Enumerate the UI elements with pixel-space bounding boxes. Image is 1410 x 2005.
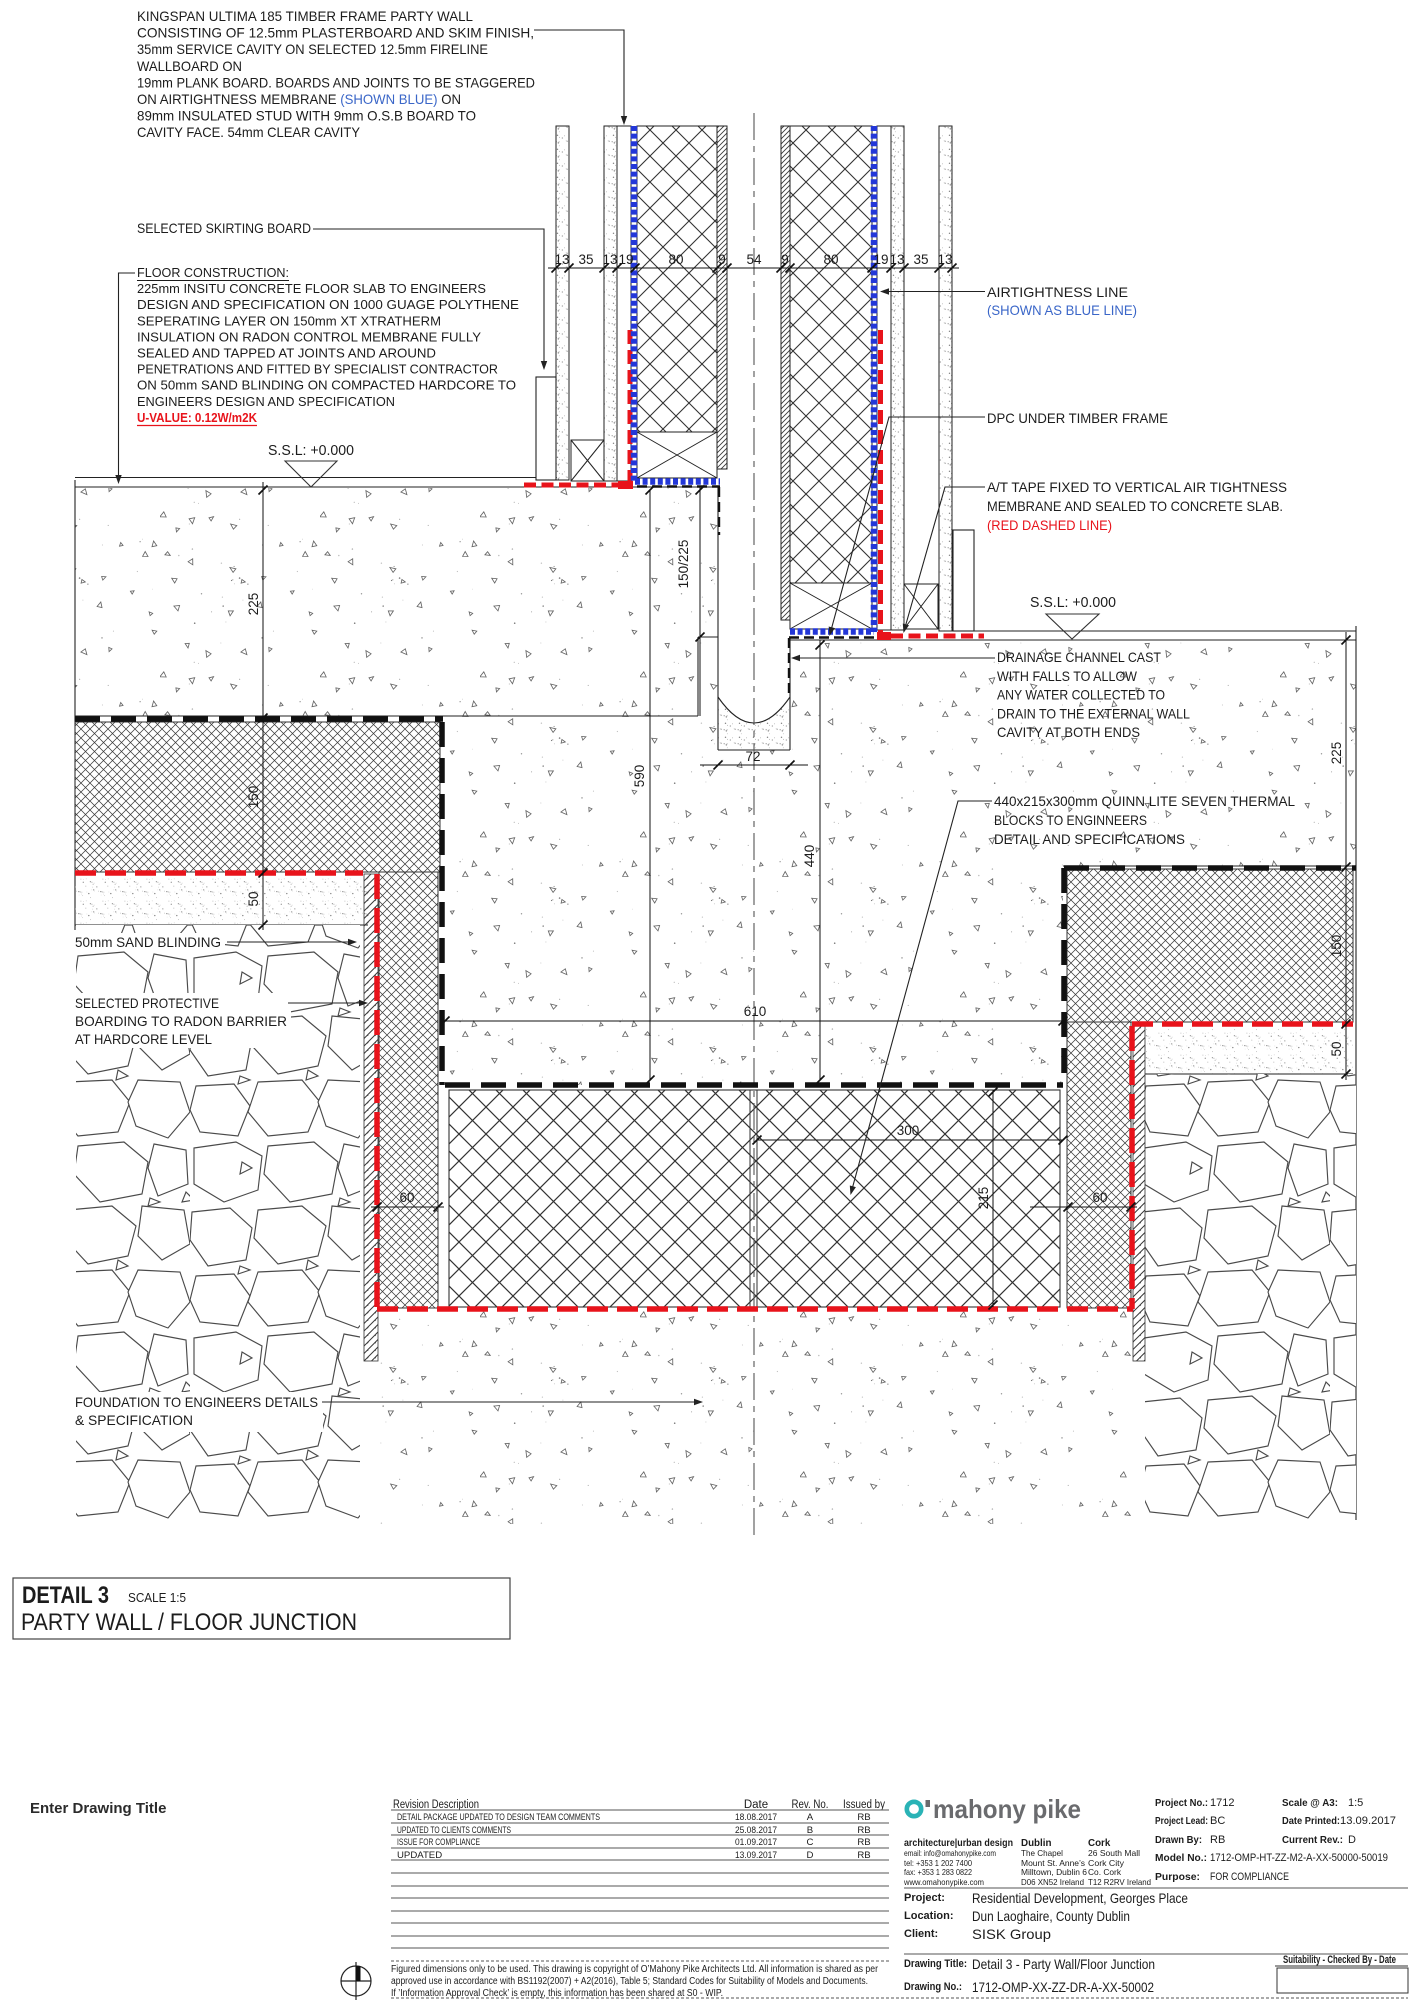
svg-text:Rev. No.: Rev. No. (792, 1799, 829, 1811)
svg-text:AIRTIGHTNESS LINE: AIRTIGHTNESS LINE (987, 285, 1128, 300)
svg-text:13: 13 (602, 252, 617, 267)
svg-text:FLOOR CONSTRUCTION:: FLOOR CONSTRUCTION: (137, 265, 289, 280)
svg-text:590: 590 (632, 765, 647, 788)
svg-text:13: 13 (889, 252, 904, 267)
svg-text:225: 225 (246, 593, 261, 616)
svg-text:D: D (807, 1850, 814, 1861)
svg-text:If ’Information Approval Check: If ’Information Approval Check’ is empty… (391, 1988, 723, 1999)
svg-text:Model No.:: Model No.: (1155, 1852, 1207, 1864)
svg-text:MEMBRANE AND SEALED TO CONCRET: MEMBRANE AND SEALED TO CONCRETE SLAB. (987, 499, 1283, 514)
svg-text:Current Rev.:: Current Rev.: (1282, 1834, 1343, 1846)
svg-text:9: 9 (718, 252, 726, 267)
svg-text:Project No.:: Project No.: (1155, 1797, 1208, 1809)
svg-text:INSULATION ON RADON CONTROL ME: INSULATION ON RADON CONTROL MEMBRANE FUL… (137, 329, 481, 344)
svg-text:KINGSPAN ULTIMA 185 TIMBER FRA: KINGSPAN ULTIMA 185 TIMBER FRAME PARTY W… (137, 9, 473, 24)
svg-text:(RED DASHED LINE): (RED DASHED LINE) (987, 518, 1112, 533)
svg-text:Co. Cork: Co. Cork (1088, 1867, 1122, 1877)
svg-text:13.09.2017: 13.09.2017 (1340, 1815, 1396, 1827)
svg-text:SELECTED SKIRTING BOARD: SELECTED SKIRTING BOARD (137, 221, 311, 236)
svg-text:The Chapel: The Chapel (1021, 1848, 1063, 1858)
svg-text:approved use in accordance wit: approved use in accordance with BS1192(2… (391, 1976, 868, 1987)
svg-text:13: 13 (554, 252, 569, 267)
svg-text:150/225: 150/225 (676, 540, 691, 589)
svg-text:DRAINAGE CHANNEL CAST: DRAINAGE CHANNEL CAST (997, 650, 1162, 665)
svg-text:Figured dimensions only to be: Figured dimensions only to be used. This… (391, 1964, 879, 1975)
svg-text:BOARDING TO RADON BARRIER: BOARDING TO RADON BARRIER (75, 1014, 287, 1029)
svg-text:Date Printed:: Date Printed: (1282, 1815, 1340, 1827)
svg-text:(SHOWN AS BLUE LINE): (SHOWN AS BLUE LINE) (987, 303, 1137, 318)
svg-text:CONSISTING OF 12.5mm PLASTERBO: CONSISTING OF 12.5mm PLASTERBOARD AND SK… (137, 26, 534, 41)
svg-text:Milltown, Dublin 6: Milltown, Dublin 6 (1021, 1867, 1087, 1877)
svg-text:Project:: Project: (904, 1892, 945, 1904)
svg-text:Scale @ A3:: Scale @ A3: (1282, 1797, 1338, 1809)
svg-text:PENETRATIONS AND FITTED BY SPE: PENETRATIONS AND FITTED BY SPECIALIST CO… (137, 362, 498, 377)
svg-text:mahony pike: mahony pike (933, 1794, 1081, 1824)
svg-text:Purpose:: Purpose: (1155, 1871, 1200, 1883)
svg-text:FOUNDATION TO ENGINEERS DETAIL: FOUNDATION TO ENGINEERS DETAILS (75, 1395, 318, 1410)
svg-text:25.08.2017: 25.08.2017 (735, 1825, 777, 1836)
svg-text:email: info@omahonypike.com: email: info@omahonypike.com (904, 1848, 996, 1858)
svg-text:610: 610 (744, 1004, 767, 1019)
svg-text:Date: Date (744, 1799, 768, 1811)
svg-text:300: 300 (897, 1123, 920, 1138)
svg-text:PARTY WALL / FLOOR JUNCTION: PARTY WALL / FLOOR JUNCTION (21, 1609, 357, 1636)
svg-text:A: A (807, 1812, 814, 1823)
svg-text:50: 50 (1329, 1041, 1344, 1056)
svg-text:225: 225 (1329, 742, 1344, 765)
svg-text:Drawing Title:: Drawing Title: (904, 1958, 967, 1970)
svg-text:1712-OMP-HT-ZZ-M2-A-XX-50000-5: 1712-OMP-HT-ZZ-M2-A-XX-50000-50019 (1210, 1852, 1388, 1864)
svg-text:80: 80 (823, 252, 838, 267)
svg-text:Detail 3 - Party Wall/Floor Ju: Detail 3 - Party Wall/Floor Junction (972, 1956, 1155, 1972)
svg-text:1712-OMP-XX-ZZ-DR-A-XX-50002: 1712-OMP-XX-ZZ-DR-A-XX-50002 (972, 1979, 1154, 1995)
svg-text:Project Lead:: Project Lead: (1155, 1815, 1208, 1827)
svg-text:1:5: 1:5 (1348, 1797, 1363, 1809)
svg-text:13: 13 (937, 252, 952, 267)
svg-text:18.08.2017: 18.08.2017 (735, 1812, 777, 1823)
svg-text:Enter Drawing Title: Enter Drawing Title (30, 1800, 166, 1817)
svg-text:Location:: Location: (904, 1910, 954, 1922)
svg-text:19mm PLANK BOARD. BOARDS AND J: 19mm PLANK BOARD. BOARDS AND JOINTS TO B… (137, 75, 535, 90)
svg-text:19: 19 (873, 252, 888, 267)
svg-text:CAVITY FACE. 54mm CLEAR CAVITY: CAVITY FACE. 54mm CLEAR CAVITY (137, 125, 360, 140)
svg-text:RB: RB (857, 1812, 870, 1823)
svg-text:T12 R2RV Ireland: T12 R2RV Ireland (1088, 1877, 1151, 1887)
svg-text:72: 72 (745, 749, 760, 764)
svg-text:50mm SAND BLINDING: 50mm SAND BLINDING (75, 935, 221, 950)
svg-text:13.09.2017: 13.09.2017 (735, 1850, 777, 1861)
svg-text:Residential Development, Georg: Residential Development, Georges Place (972, 1890, 1188, 1906)
svg-text:Client:: Client: (904, 1928, 938, 1940)
svg-text:DRAIN TO THE EXTERNAL WALL: DRAIN TO THE EXTERNAL WALL (997, 706, 1190, 721)
svg-text:150: 150 (1329, 935, 1344, 958)
svg-text:A/T TAPE FIXED TO VERTICAL AIR: A/T TAPE FIXED TO VERTICAL AIR TIGHTNESS (987, 480, 1287, 495)
svg-text:Drawing No.:: Drawing No.: (904, 1981, 962, 1993)
svg-text:Issued by: Issued by (843, 1799, 885, 1811)
svg-text:UPDATED: UPDATED (397, 1850, 442, 1861)
svg-text:DETAIL AND SPECIFICATIONS: DETAIL AND SPECIFICATIONS (994, 832, 1185, 847)
svg-text:AT HARDCORE LEVEL: AT HARDCORE LEVEL (75, 1032, 212, 1047)
svg-text:35mm SERVICE CAVITY ON SELECTE: 35mm SERVICE CAVITY ON SELECTED 12.5mm F… (137, 42, 488, 57)
svg-text:01.09.2017: 01.09.2017 (735, 1837, 777, 1848)
svg-text:RB: RB (1210, 1834, 1225, 1846)
svg-text:D: D (1348, 1834, 1356, 1846)
svg-text:Dun Laoghaire, County Dublin: Dun Laoghaire, County Dublin (972, 1908, 1130, 1924)
svg-text:440x215x300mm QUINN LITE SEVEN: 440x215x300mm QUINN LITE SEVEN THERMAL (994, 794, 1295, 809)
svg-text:U-VALUE: 0.12W/m2K: U-VALUE: 0.12W/m2K (137, 410, 258, 425)
svg-text:FOR COMPLIANCE: FOR COMPLIANCE (1210, 1871, 1289, 1883)
svg-text:9: 9 (781, 252, 789, 267)
svg-text:www.omahonypike.com: www.omahonypike.com (903, 1877, 984, 1887)
svg-text:D06 XN52 Ireland: D06 XN52 Ireland (1021, 1877, 1084, 1887)
svg-text:50: 50 (246, 891, 261, 906)
svg-text:RB: RB (857, 1850, 870, 1861)
svg-text:DETAIL 3: DETAIL 3 (22, 1582, 109, 1609)
svg-text:BC: BC (1210, 1815, 1225, 1827)
svg-text:RB: RB (857, 1825, 870, 1836)
svg-text:26 South Mall: 26 South Mall (1088, 1848, 1140, 1858)
svg-text:S.S.L: +0.000: S.S.L: +0.000 (1030, 595, 1116, 611)
svg-text:ON 50mm SAND BLINDING ON COMPA: ON 50mm SAND BLINDING ON COMPACTED HARDC… (137, 378, 516, 393)
svg-text:215: 215 (976, 1187, 991, 1210)
svg-text:CAVITY AT BOTH ENDS: CAVITY AT BOTH ENDS (997, 725, 1140, 740)
svg-text:60: 60 (1092, 1190, 1107, 1205)
svg-text:& SPECIFICATION: & SPECIFICATION (75, 1413, 193, 1428)
svg-text:RB: RB (857, 1837, 870, 1848)
svg-text:35: 35 (578, 252, 593, 267)
svg-text:225mm INSITU CONCRETE FLOOR SL: 225mm INSITU CONCRETE FLOOR SLAB TO ENGI… (137, 281, 486, 296)
svg-text:DETAIL PACKAGE UPDATED TO DESI: DETAIL PACKAGE UPDATED TO DESIGN TEAM CO… (397, 1812, 600, 1823)
svg-text:B: B (807, 1825, 813, 1836)
svg-text:WITH FALLS TO ALLOW: WITH FALLS TO ALLOW (997, 669, 1137, 684)
svg-text:DESIGN AND SPECIFICATION ON 10: DESIGN AND SPECIFICATION ON 1000 GUAGE P… (137, 297, 519, 312)
svg-text:BLOCKS TO ENGINNEERS: BLOCKS TO ENGINNEERS (994, 813, 1147, 828)
svg-text:1712: 1712 (1210, 1797, 1234, 1809)
svg-text:SEALED AND TAPPED AT JOINTS AN: SEALED AND TAPPED AT JOINTS AND AROUND (137, 346, 436, 361)
svg-text:19: 19 (618, 252, 633, 267)
svg-text:54: 54 (746, 252, 762, 267)
svg-text:WALLBOARD ON: WALLBOARD ON (137, 59, 242, 74)
svg-text:SEPERATING LAYER ON 150mm XT X: SEPERATING LAYER ON 150mm XT XTRATHERM (137, 313, 441, 328)
svg-text:SISK Group: SISK Group (972, 1926, 1051, 1942)
svg-text:35: 35 (913, 252, 928, 267)
svg-text:S.S.L: +0.000: S.S.L: +0.000 (268, 443, 354, 459)
svg-text:fax: +353 1 283 0822: fax: +353 1 283 0822 (904, 1867, 972, 1877)
svg-text:SCALE 1:5: SCALE 1:5 (128, 1590, 186, 1605)
svg-text:ENGINEERS DESIGN AND SPECIFICA: ENGINEERS DESIGN AND SPECIFICATION (137, 394, 395, 409)
svg-text:Revision Description: Revision Description (393, 1799, 479, 1811)
svg-text:440: 440 (802, 845, 817, 868)
svg-text:150: 150 (246, 786, 261, 809)
svg-text:C: C (807, 1837, 814, 1848)
svg-text:60: 60 (399, 1190, 414, 1205)
svg-text:Suitability - Checked By - Dat: Suitability - Checked By - Date (1283, 1954, 1396, 1966)
svg-text:ANY WATER COLLECTED TO: ANY WATER COLLECTED TO (997, 688, 1165, 703)
svg-text:UPDATED TO CLIENTS COMMENTS: UPDATED TO CLIENTS COMMENTS (397, 1825, 511, 1836)
svg-text:89mm INSULATED STUD WITH 9mm O: 89mm INSULATED STUD WITH 9mm O.S.B BOARD… (137, 109, 476, 124)
svg-text:80: 80 (668, 252, 683, 267)
svg-text:SELECTED PROTECTIVE: SELECTED PROTECTIVE (75, 996, 219, 1011)
svg-text:ON AIRTIGHTNESS MEMBRANE (SHOW: ON AIRTIGHTNESS MEMBRANE (SHOWN BLUE) ON (137, 92, 461, 107)
svg-text:ISSUE FOR COMPLIANCE: ISSUE FOR COMPLIANCE (397, 1837, 480, 1848)
svg-text:DPC UNDER TIMBER FRAME: DPC UNDER TIMBER FRAME (987, 411, 1168, 426)
svg-text:Drawn By:: Drawn By: (1155, 1834, 1202, 1846)
